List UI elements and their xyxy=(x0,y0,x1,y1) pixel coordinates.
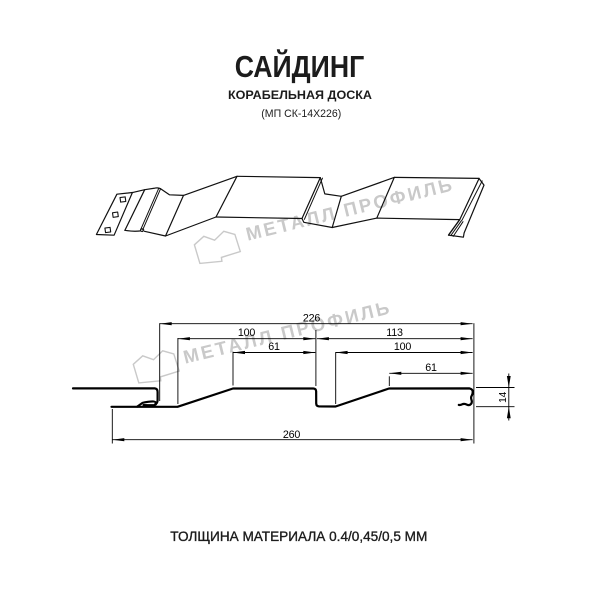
svg-text:61: 61 xyxy=(425,362,437,374)
svg-text:100: 100 xyxy=(238,327,255,339)
svg-text:100: 100 xyxy=(394,341,411,353)
svg-text:260: 260 xyxy=(283,429,300,441)
svg-text:226: 226 xyxy=(303,312,320,324)
svg-text:113: 113 xyxy=(386,327,403,339)
svg-text:61: 61 xyxy=(268,341,280,353)
svg-text:САЙДИНГ: САЙДИНГ xyxy=(235,48,365,84)
svg-text:ТОЛЩИНА МАТЕРИАЛА 0.4/0,45/0,5: ТОЛЩИНА МАТЕРИАЛА 0.4/0,45/0,5 ММ xyxy=(170,529,427,544)
svg-text:14: 14 xyxy=(498,391,509,402)
svg-text:КОРАБЕЛЬНАЯ ДОСКА: КОРАБЕЛЬНАЯ ДОСКА xyxy=(228,89,373,102)
svg-text:(МП СК-14Х226): (МП СК-14Х226) xyxy=(261,108,341,120)
